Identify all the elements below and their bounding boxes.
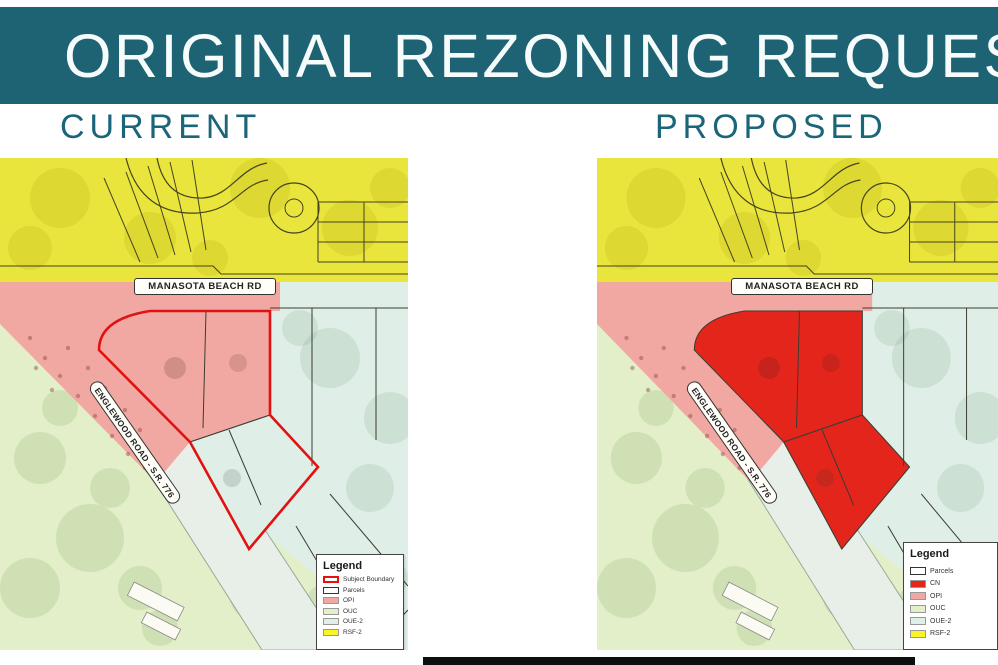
legend-swatch-subject [323,576,339,583]
legend-swatch-ouc [910,605,926,613]
slide-title-banner: ORIGINAL REZONING REQUEST [0,7,998,104]
manasota-beach-rd-label: MANASOTA BEACH RD [731,278,873,295]
legend-swatch-oue2 [323,618,339,625]
legend-swatch-opi [910,592,926,600]
legend-label: Parcels [930,568,953,575]
current-heading: CURRENT [60,108,261,147]
legend-entry: Parcels [910,567,991,575]
legend-swatch-oue2 [910,617,926,625]
proposed-zoning-map: MANASOTA BEACH RD ENGLEWOOD ROAD - S.R. … [597,158,998,650]
legend-swatch-parcels [910,567,926,575]
rezoning-slide: ORIGINAL REZONING REQUEST CURRENT PROPOS… [0,0,998,665]
legend-swatch-rsf2 [910,630,926,638]
legend-swatch-ouc [323,608,339,615]
legend-label: OUE-2 [930,618,951,625]
legend-label: CN [930,580,940,587]
legend-entry: OUC [910,605,991,613]
slide-title: ORIGINAL REZONING REQUEST [0,21,998,91]
legend-swatch-rsf2 [323,629,339,636]
legend-entry: RSF-2 [323,629,397,636]
legend-label: OUC [343,608,357,615]
legend-proposed: Legend ParcelsCNOPIOUCOUE-2RSF-2 [903,542,998,650]
legend-title: Legend [910,548,991,560]
bottom-black-bar [423,657,915,665]
legend-label: RSF-2 [343,629,362,636]
legend-label: OUC [930,605,946,612]
legend-entry: OUE-2 [910,617,991,625]
legend-swatch-cn [910,580,926,588]
legend-entry: Subject Boundary [323,576,397,583]
legend-current: Legend Subject BoundaryParcelsOPIOUCOUE-… [316,554,404,650]
legend-title: Legend [323,560,397,572]
legend-swatch-opi [323,597,339,604]
legend-entry: OUE-2 [323,618,397,625]
manasota-beach-rd-label: MANASOTA BEACH RD [134,278,276,295]
legend-label: Parcels [343,587,365,594]
legend-label: RSF-2 [930,630,950,637]
legend-label: OPI [343,597,354,604]
legend-swatch-parcels [323,587,339,594]
current-zoning-map: MANASOTA BEACH RD ENGLEWOOD ROAD - S.R. … [0,158,408,650]
legend-entry: Parcels [323,587,397,594]
legend-entry: CN [910,580,991,588]
legend-entry: OPI [323,597,397,604]
legend-label: OPI [930,593,942,600]
legend-entry: RSF-2 [910,630,991,638]
legend-rows: ParcelsCNOPIOUCOUE-2RSF-2 [910,567,991,638]
legend-rows: Subject BoundaryParcelsOPIOUCOUE-2RSF-2 [323,576,397,636]
legend-label: Subject Boundary [343,576,394,583]
legend-entry: OUC [323,608,397,615]
legend-entry: OPI [910,592,991,600]
proposed-heading: PROPOSED [655,108,888,147]
legend-label: OUE-2 [343,618,363,625]
